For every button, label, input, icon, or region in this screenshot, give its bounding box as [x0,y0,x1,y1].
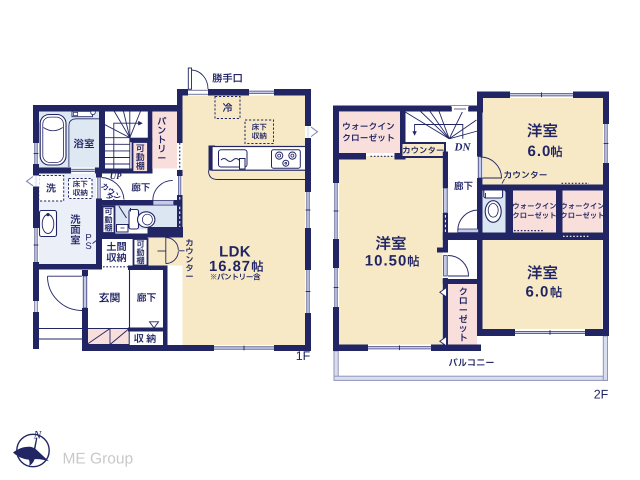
svg-text:2F: 2F [594,388,609,402]
svg-text:1F: 1F [296,349,311,363]
svg-text:10.50: 10.50 [365,253,408,270]
svg-text:6.0: 6.0 [526,284,550,301]
svg-text:LDK: LDK [219,244,251,261]
svg-text:6.0: 6.0 [528,143,552,160]
svg-text:16.87: 16.87 [209,259,251,275]
svg-text:ME Group: ME Group [63,451,134,468]
svg-text:DN: DN [454,142,472,154]
svg-text:UP: UP [110,171,122,181]
svg-text:S: S [85,241,91,252]
svg-text:N: N [33,430,43,442]
